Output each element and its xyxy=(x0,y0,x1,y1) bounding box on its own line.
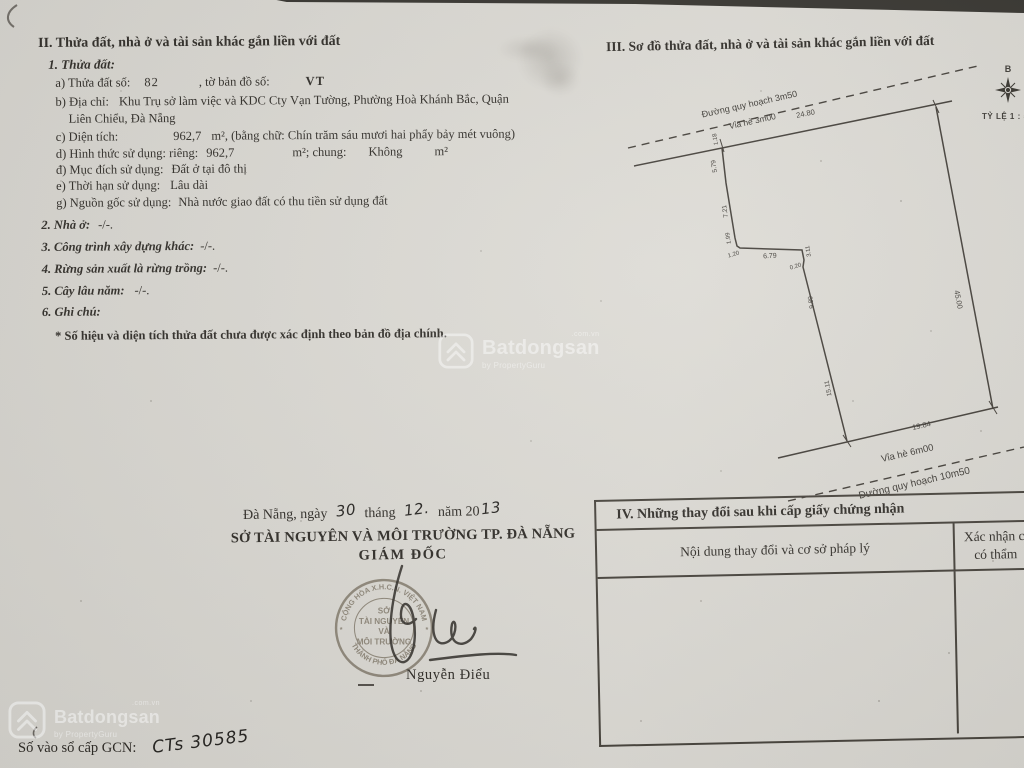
batdongsan-logo-icon xyxy=(8,701,46,739)
signature-dash-mark xyxy=(358,684,374,686)
field-other-construction: 3. Công trình xây dựng khác:-/-. xyxy=(41,239,215,255)
section2-title: II. Thửa đất, nhà ở và tài sản khác gắn … xyxy=(38,34,340,52)
stamp-star-left: * xyxy=(340,626,343,634)
watermark-center: .com.vn Batdongsan by PropertyGuru xyxy=(438,331,600,370)
subsection-thua-dat: 1. Thửa đất: xyxy=(48,56,115,72)
month-label: tháng xyxy=(364,506,395,521)
field-address-line2: Liên Chiểu, Đà Nẵng xyxy=(69,111,176,127)
compass-north-label: B xyxy=(1005,64,1012,74)
year-label: năm 20 xyxy=(438,504,480,520)
map-sheet-value: VT xyxy=(306,74,325,88)
address-value-line2: Liên Chiểu, Đà Nẵng xyxy=(69,111,176,126)
watermark-brand: Batdongsan xyxy=(54,707,160,727)
table-cell-change-content xyxy=(598,571,959,740)
scanned-land-certificate: II. Thửa đất, nhà ở và tài sản khác gắn … xyxy=(0,0,1024,768)
dim-left-8: 0.20 xyxy=(789,262,803,271)
date-line: Đà Nẵng, ngày 30 tháng 12. năm 2013 xyxy=(243,501,506,524)
plot-diagram: Đường quy hoạch 3m50 Vỉa hè 3m00 24.80 4… xyxy=(600,52,1024,504)
other-construction-value: -/-. xyxy=(200,239,215,253)
forest-value: -/-. xyxy=(213,261,228,275)
dim-left-4: 1.99 xyxy=(725,231,733,244)
perennial-label: 5. Cây lâu năm: xyxy=(42,283,125,298)
dim-left-3: 7.21 xyxy=(721,204,730,218)
use-term-value: Lâu dài xyxy=(170,178,208,192)
dim-left-6: 6.79 xyxy=(763,253,777,261)
plot-right-boundary xyxy=(936,107,993,409)
field-use-origin: g) Nguồn gốc sử dụng:Nhà nước giao đất c… xyxy=(56,194,388,211)
field-use-term: e) Thời hạn sử dụng:Lâu dài xyxy=(56,178,208,194)
table-header-row: Nội dung thay đổi và cơ sở pháp lý Xác n… xyxy=(597,521,1024,579)
field-perennial: 5. Cây lâu năm:-/-. xyxy=(42,283,150,299)
house-label: 2. Nhà ở: xyxy=(41,218,90,232)
use-purpose-value: Đất ở tại đô thị xyxy=(171,162,246,177)
field-house: 2. Nhà ở:-/-. xyxy=(41,217,113,232)
planned-road-top-line xyxy=(628,65,982,148)
road-top-label: Đường quy hoạch 3m50 xyxy=(701,89,798,120)
house-value: -/-. xyxy=(98,217,113,231)
use-form-shared-value: Không xyxy=(368,144,402,158)
parcel-number-value: 82 xyxy=(144,75,159,89)
use-origin-value: Nhà nước giao đất có thu tiền sử dụng đấ… xyxy=(178,194,387,209)
date-place: Đà Nẵng, ngày xyxy=(243,507,328,523)
watermark-byline: by PropertyGuru xyxy=(482,361,600,370)
scan-smudge xyxy=(518,28,582,90)
dim-left-9: 9.89 xyxy=(807,295,816,309)
sidewalk-top-line xyxy=(634,101,952,166)
signature-main-loop xyxy=(390,566,416,662)
corner-tick xyxy=(933,100,939,113)
watermark-text: .com.vn Batdongsan by PropertyGuru xyxy=(54,700,160,739)
map-sheet-label: , tờ bản đồ số: xyxy=(199,74,270,88)
perennial-value: -/-. xyxy=(134,283,149,297)
use-origin-label: g) Nguồn gốc sử dụng: xyxy=(56,195,171,210)
scan-smudge xyxy=(540,62,580,96)
other-construction-label: 3. Công trình xây dựng khác: xyxy=(41,239,194,254)
field-use-form: d) Hình thức sử dụng: riêng:962,7m²; chu… xyxy=(56,144,448,162)
use-form-label: d) Hình thức sử dụng: riêng: xyxy=(56,146,198,161)
use-term-label: e) Thời hạn sử dụng: xyxy=(56,178,160,193)
gcn-register-line: Số vào sổ cấp GCN: CTs 30585 xyxy=(18,737,250,757)
plot-bottom-boundary xyxy=(778,407,998,458)
handwritten-month: 12. xyxy=(403,499,430,520)
use-form-unit: m² xyxy=(434,144,448,158)
scan-edge-shadow xyxy=(0,0,1024,14)
use-form-shared-label: m²; chung: xyxy=(292,145,346,159)
dim-left-1: 1.18 xyxy=(712,132,720,145)
dim-top: 24.80 xyxy=(795,107,815,120)
field-forest: 4. Rừng sản xuất là rừng trồng:-/-. xyxy=(42,261,228,277)
sidewalk-top-label: Vỉa hè 3m00 xyxy=(728,111,777,131)
compass-icon xyxy=(995,77,1021,103)
dim-left-7: 3.11 xyxy=(805,244,813,257)
area-label: c) Diện tích: xyxy=(56,129,119,143)
pencil-mark-top-left xyxy=(2,2,28,30)
signature-underline xyxy=(430,654,516,660)
scan-smudge xyxy=(498,36,558,62)
col-header-change-content: Nội dung thay đổi và cơ sở pháp lý xyxy=(597,523,956,576)
use-purpose-label: đ) Mục đích sử dụng: xyxy=(56,162,164,177)
watermark-text: .com.vn Batdongsan by PropertyGuru xyxy=(482,331,600,370)
watermark-domain: .com.vn xyxy=(54,700,160,707)
col-header-confirmation-line2: có thẩm xyxy=(964,544,1024,564)
field-parcel-number: a) Thửa đất số:82, tờ bản đồ số:VT xyxy=(55,74,325,91)
table-body-row xyxy=(598,569,1024,741)
signature-flourish xyxy=(433,610,475,644)
dim-left-2: 5.79 xyxy=(710,159,719,173)
batdongsan-logo-icon xyxy=(438,333,474,369)
area-value: 962,7 xyxy=(173,129,201,143)
paper-speckles xyxy=(0,0,2,2)
field-address-line1: b) Địa chỉ:Khu Trụ sở làm việc và KDC Ct… xyxy=(55,92,508,110)
sidewalk-bottom-label: Vỉa hè 6m00 xyxy=(880,442,934,465)
issuing-authority: SỞ TÀI NGUYÊN VÀ MÔI TRƯỜNG TP. ĐÀ NẴNG xyxy=(228,526,578,548)
address-value-line1: Khu Trụ sở làm việc và KDC Cty Vạn Tường… xyxy=(119,92,509,109)
field-use-purpose: đ) Mục đích sử dụng:Đất ở tại đô thị xyxy=(56,162,247,178)
address-label: b) Địa chỉ: xyxy=(55,94,109,108)
scale-label: TỶ LỆ 1 : 500 xyxy=(982,112,1024,121)
use-form-private-value: 962,7 xyxy=(206,146,234,160)
handwritten-day: 30 xyxy=(335,500,357,520)
field-area: c) Diện tích:962,7m², (bằng chữ: Chín tr… xyxy=(56,127,515,145)
area-in-words: m², (bằng chữ: Chín trăm sáu mươi hai ph… xyxy=(211,127,515,143)
watermark-brand: Batdongsan xyxy=(482,337,600,359)
notes-heading: 6. Ghi chú: xyxy=(42,305,101,320)
handwritten-year: 13 xyxy=(479,498,501,518)
parcel-number-label: a) Thửa đất số: xyxy=(55,75,130,90)
note-text: * Số hiệu và diện tích thửa đất chưa đượ… xyxy=(55,326,447,344)
table-cell-confirmation xyxy=(956,569,1024,733)
section-changes-table: IV. Những thay đổi sau khi cấp giấy chứn… xyxy=(594,490,1024,747)
dim-right: 45.00 xyxy=(952,289,964,309)
watermark-bottom-left: .com.vn Batdongsan by PropertyGuru xyxy=(8,700,160,739)
col-header-confirmation-line1: Xác nhận c xyxy=(964,526,1024,546)
plot-boundaries xyxy=(628,65,1024,501)
gcn-handwritten-number: CTs 30585 xyxy=(151,726,250,758)
signer-name: Nguyễn Điểu xyxy=(406,667,490,684)
dim-bottom: 19.84 xyxy=(911,419,931,432)
gcn-label: Số vào sổ cấp GCN: xyxy=(18,740,136,756)
col-header-confirmation: Xác nhận c có thẩm xyxy=(955,521,1024,570)
section-parcel-info: II. Thửa đất, nhà ở và tài sản khác gắn … xyxy=(35,26,583,30)
forest-label: 4. Rừng sản xuất là rừng trồng: xyxy=(42,261,207,276)
dim-left-5: 1.20 xyxy=(727,250,741,259)
